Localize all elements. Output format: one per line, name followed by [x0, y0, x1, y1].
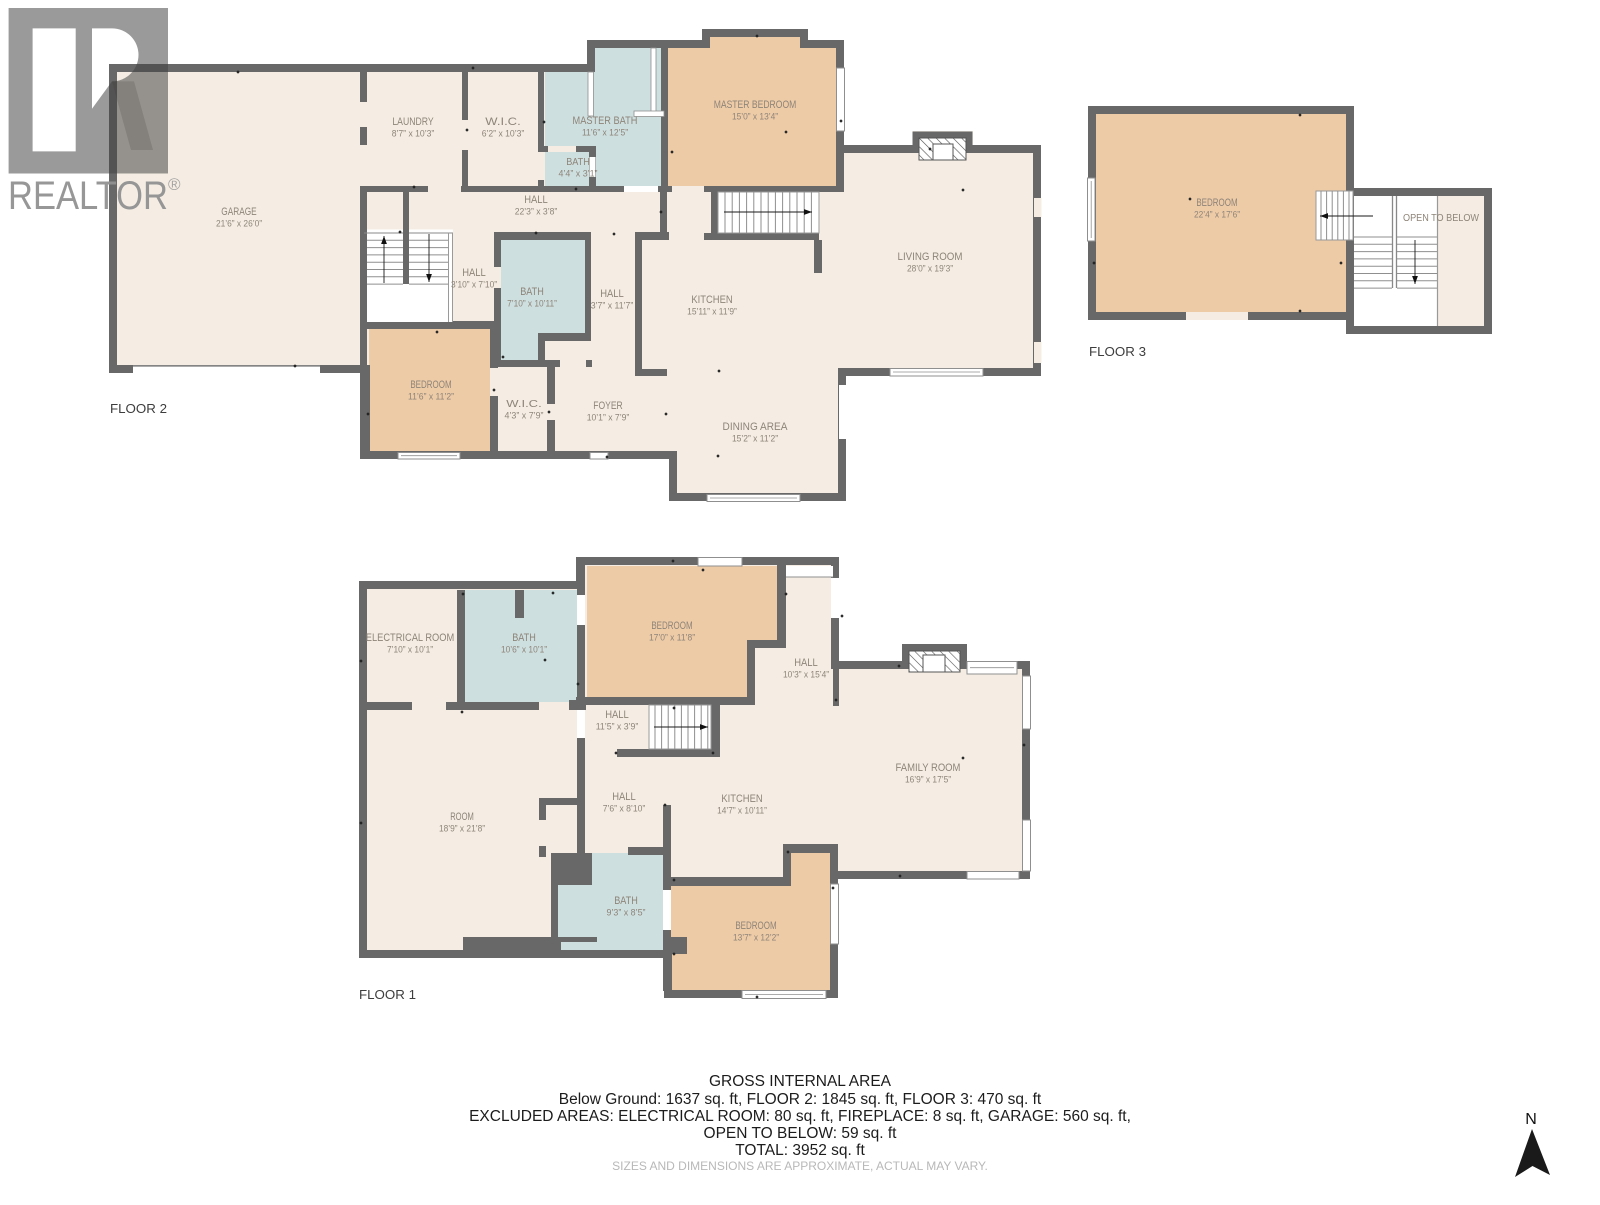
svg-text:HALL: HALL — [524, 194, 548, 206]
svg-text:8’7” x 10’3”: 8’7” x 10’3” — [392, 129, 435, 140]
svg-text:15’11” x 11’9”: 15’11” x 11’9” — [687, 307, 737, 318]
svg-text:BEDROOM: BEDROOM — [1196, 197, 1237, 209]
svg-text:KITCHEN: KITCHEN — [721, 793, 762, 805]
svg-text:BATH: BATH — [614, 895, 638, 907]
svg-text:HALL: HALL — [600, 288, 624, 300]
svg-text:11’6” x 11’2”: 11’6” x 11’2” — [408, 392, 454, 403]
svg-text:HALL: HALL — [794, 657, 818, 669]
svg-text:11’5” x 3’9”: 11’5” x 3’9” — [596, 722, 639, 733]
svg-text:10’6” x 10’1”: 10’6” x 10’1” — [501, 645, 547, 656]
svg-text:FLOOR 1: FLOOR 1 — [359, 987, 416, 1002]
svg-text:3’10” x 7’10”: 3’10” x 7’10” — [451, 280, 497, 291]
svg-text:HALL: HALL — [462, 267, 486, 279]
svg-text:9’3” x 8’5”: 9’3” x 8’5” — [607, 908, 646, 919]
svg-text:15’2” x 11’2”: 15’2” x 11’2” — [732, 434, 778, 445]
svg-text:22’3” x 3’8”: 22’3” x 3’8” — [515, 207, 558, 218]
svg-text:FLOOR 2: FLOOR 2 — [110, 401, 167, 416]
svg-text:16’9” x 17’5”: 16’9” x 17’5” — [905, 775, 951, 786]
svg-text:GROSS INTERNAL AREA: GROSS INTERNAL AREA — [709, 1073, 892, 1090]
svg-text:MASTER BEDROOM: MASTER BEDROOM — [714, 99, 797, 111]
svg-text:BEDROOM: BEDROOM — [651, 620, 692, 632]
svg-text:W.I.C.: W.I.C. — [485, 116, 520, 128]
svg-text:4’3” x 7’9”: 4’3” x 7’9” — [505, 411, 544, 421]
svg-text:13’7” x 12’2”: 13’7” x 12’2” — [733, 933, 779, 944]
svg-text:ELECTRICAL ROOM: ELECTRICAL ROOM — [366, 632, 455, 644]
svg-text:BEDROOM: BEDROOM — [410, 379, 451, 391]
svg-text:SIZES AND DIMENSIONS ARE APPRO: SIZES AND DIMENSIONS ARE APPROXIMATE, AC… — [612, 1159, 988, 1173]
svg-text:18’9” x 21’8”: 18’9” x 21’8” — [439, 824, 485, 835]
svg-text:BEDROOM: BEDROOM — [735, 920, 776, 932]
svg-text:3’7” x 11’7”: 3’7” x 11’7” — [591, 301, 634, 312]
svg-text:Below Ground: 1637 sq. ft, FLO: Below Ground: 1637 sq. ft, FLOOR 2: 1845… — [559, 1091, 1042, 1108]
svg-text:FLOOR 3: FLOOR 3 — [1089, 344, 1146, 359]
svg-text:ROOM: ROOM — [450, 811, 474, 823]
svg-text:TOTAL: 3952 sq. ft: TOTAL: 3952 sq. ft — [735, 1142, 865, 1159]
svg-text:14’7” x 10’11”: 14’7” x 10’11” — [717, 806, 767, 817]
svg-text:BATH: BATH — [520, 286, 544, 298]
svg-text:OPEN TO BELOW: OPEN TO BELOW — [1403, 212, 1479, 224]
svg-text:W.I.C.: W.I.C. — [506, 399, 541, 410]
svg-text:4’4” x 3’1”: 4’4” x 3’1” — [559, 169, 598, 179]
svg-text:10’1” x 7’9”: 10’1” x 7’9” — [587, 413, 630, 424]
svg-text:BATH: BATH — [512, 632, 536, 644]
svg-text:EXCLUDED AREAS: ELECTRICAL ROO: EXCLUDED AREAS: ELECTRICAL ROOM: 80 sq. … — [469, 1108, 1131, 1125]
svg-text:DINING AREA: DINING AREA — [723, 421, 789, 433]
svg-text:KITCHEN: KITCHEN — [691, 294, 732, 306]
svg-text:OPEN TO BELOW: 59 sq. ft: OPEN TO BELOW: 59 sq. ft — [704, 1125, 898, 1142]
svg-text:GARAGE: GARAGE — [221, 206, 256, 218]
svg-text:N: N — [1525, 1111, 1537, 1128]
svg-text:6’2” x 10’3”: 6’2” x 10’3” — [482, 129, 525, 140]
svg-text:28’0” x 19’3”: 28’0” x 19’3” — [907, 264, 953, 275]
svg-text:LAUNDRY: LAUNDRY — [392, 116, 434, 128]
svg-text:FOYER: FOYER — [593, 400, 623, 412]
svg-text:7’10” x 10’1”: 7’10” x 10’1” — [387, 645, 433, 656]
svg-text:7’6” x 8’10”: 7’6” x 8’10” — [603, 804, 646, 815]
svg-text:11’6” x 12’5”: 11’6” x 12’5” — [582, 128, 628, 139]
svg-text:22’4” x 17’6”: 22’4” x 17’6” — [1194, 210, 1240, 221]
svg-text:7’10” x 10’11”: 7’10” x 10’11” — [507, 299, 557, 310]
svg-text:LIVING ROOM: LIVING ROOM — [898, 251, 963, 263]
svg-text:15’0” x 13’4”: 15’0” x 13’4” — [732, 112, 778, 123]
svg-text:HALL: HALL — [612, 791, 636, 803]
svg-text:21’6” x 26’0”: 21’6” x 26’0” — [216, 219, 262, 230]
svg-text:MASTER BATH: MASTER BATH — [573, 115, 638, 127]
svg-text:HALL: HALL — [605, 709, 629, 721]
svg-text:17’0” x 11’8”: 17’0” x 11’8” — [649, 633, 695, 644]
svg-text:BATH: BATH — [566, 157, 590, 168]
svg-text:FAMILY ROOM: FAMILY ROOM — [896, 762, 961, 774]
svg-text:10’3” x 15’4”: 10’3” x 15’4” — [783, 670, 829, 681]
svg-text:REALTOR: REALTOR — [8, 174, 168, 218]
svg-text:®: ® — [168, 175, 181, 194]
